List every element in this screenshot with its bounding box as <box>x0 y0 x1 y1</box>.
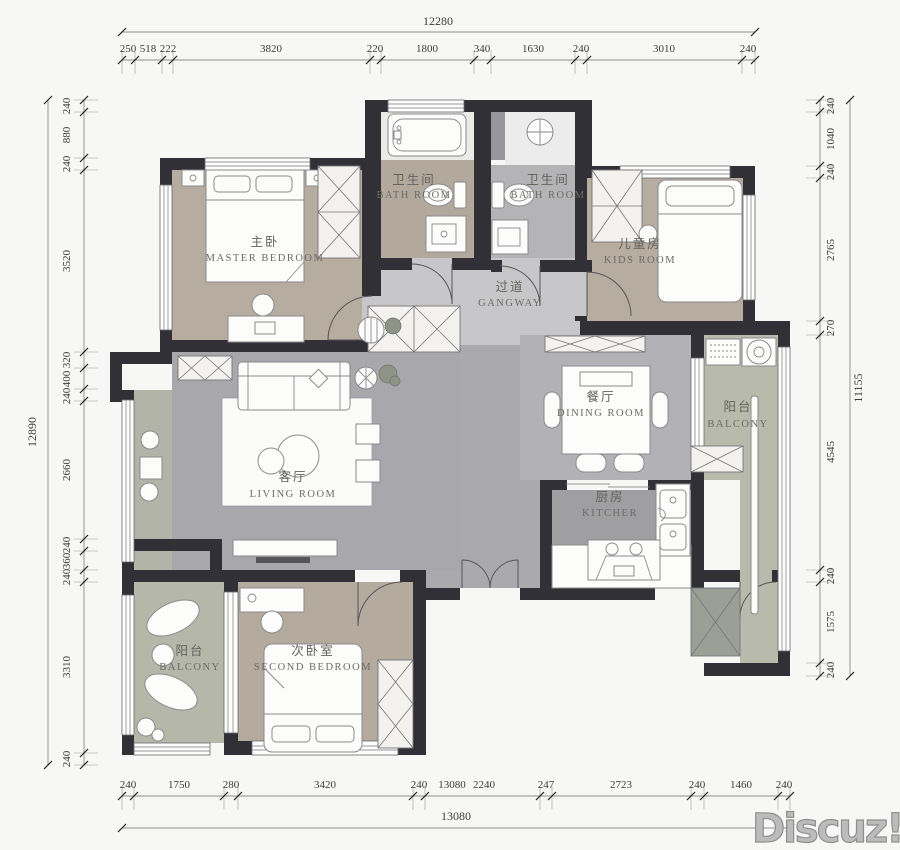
svg-text:主卧: 主卧 <box>250 234 279 249</box>
dim-label: 240 <box>120 779 137 791</box>
svg-text:GANGWAY: GANGWAY <box>478 298 542 309</box>
dim-label: 240 <box>573 43 590 55</box>
second-wardrobe-icon <box>378 660 413 748</box>
svg-text:卫生间: 卫生间 <box>392 172 436 187</box>
dim-label: 1630 <box>522 43 545 55</box>
dim-label: 880 <box>61 126 73 143</box>
dim-label: 2723 <box>610 779 633 791</box>
dim-label: 400 <box>61 370 73 387</box>
dim-label: 240 <box>825 661 837 678</box>
window-living-bay <box>122 400 134 562</box>
svg-text:LIVING ROOM: LIVING ROOM <box>250 489 337 500</box>
svg-text:BALCONY: BALCONY <box>159 662 220 673</box>
svg-text:过道: 过道 <box>495 279 524 294</box>
second-bed-icon <box>264 644 362 752</box>
dim-label: 340 <box>474 43 491 55</box>
dim-label: 1460 <box>730 779 753 791</box>
floor-plan-image: 12280 250 518 222 3820 220 1800 340 1630… <box>0 0 900 850</box>
dim-label-overlap: 13080 <box>438 779 466 791</box>
dim-label: 247 <box>538 779 555 791</box>
floor-plan-page: 12280 250 518 222 3820 220 1800 340 1630… <box>0 0 900 850</box>
dim-label: 240 <box>776 779 793 791</box>
svg-text:卫生间: 卫生间 <box>526 172 570 187</box>
flue-shaft-icon <box>691 588 740 656</box>
dim-label: 270 <box>825 319 837 336</box>
discuz-watermark: Discuz! <box>752 806 900 850</box>
door-kitchen-sliding <box>565 484 650 487</box>
bathtub-icon <box>388 114 466 156</box>
dim-label: 1800 <box>416 43 439 55</box>
dim-label: 2660 <box>61 459 73 482</box>
dim-label: 240 <box>61 97 73 114</box>
kids-wardrobe-icon <box>592 170 642 242</box>
glass-door-dining-balcony <box>691 358 704 448</box>
svg-text:BATH ROOM: BATH ROOM <box>376 190 451 201</box>
dim-label: 250 <box>120 43 137 55</box>
dim-total-top: 12280 <box>423 14 453 28</box>
window-master-top <box>205 158 310 170</box>
dim-label: 222 <box>160 43 177 55</box>
dimension-bottom: 13080 240 1750 280 3420 240 13080 2240 2… <box>118 779 794 832</box>
dimension-left: 12890 240 880 240 3520 320 400 240 2660 … <box>25 96 98 769</box>
ac-shaft-icon <box>691 446 743 472</box>
dim-label: 518 <box>140 43 157 55</box>
dim-label: 4545 <box>825 441 837 464</box>
dim-label: 3820 <box>260 43 283 55</box>
dim-label: 2765 <box>825 239 837 262</box>
master-wardrobe-icon <box>318 166 360 258</box>
window-balcony-divider <box>224 592 238 733</box>
svg-text:BALCONY: BALCONY <box>707 419 768 430</box>
window-balcony-bottom <box>134 743 210 755</box>
dim-label: 240 <box>689 779 706 791</box>
svg-text:DINING ROOM: DINING ROOM <box>557 408 645 419</box>
svg-text:BATH ROOM: BATH ROOM <box>510 190 585 201</box>
dim-label: 3520 <box>61 250 73 273</box>
svg-text:KIDS ROOM: KIDS ROOM <box>604 255 676 266</box>
svg-text:儿童房: 儿童房 <box>618 236 662 251</box>
dim-label: 1750 <box>168 779 191 791</box>
washbasin-icon <box>527 119 553 145</box>
svg-text:客厅: 客厅 <box>278 469 307 484</box>
dim-label: 3420 <box>314 779 337 791</box>
window-balcony-right <box>778 347 790 651</box>
dim-label: 2240 <box>473 779 496 791</box>
svg-text:厨房: 厨房 <box>595 489 624 504</box>
window-kids-right <box>743 195 755 300</box>
vanity-icon-bath1 <box>426 216 466 252</box>
dim-label: 240 <box>825 97 837 114</box>
sofa-icon <box>238 362 350 410</box>
dim-label: 280 <box>223 779 240 791</box>
dim-label: 240 <box>61 568 73 585</box>
shoe-cabinet-icon <box>178 356 232 380</box>
dim-label: 240 <box>61 536 73 553</box>
window-master-left <box>160 185 172 330</box>
dim-label: 3010 <box>653 43 676 55</box>
dim-total-left: 12890 <box>25 417 39 447</box>
stove-icon <box>588 540 660 580</box>
dim-label: 240 <box>825 163 837 180</box>
dim-label: 320 <box>61 351 73 368</box>
dim-label: 220 <box>367 43 384 55</box>
dim-label: 240 <box>61 155 73 172</box>
dim-label: 3310 <box>61 656 73 679</box>
svg-text:MASTER BEDROOM: MASTER BEDROOM <box>206 253 325 264</box>
svg-text:餐厅: 餐厅 <box>586 389 615 404</box>
dim-label: 240 <box>740 43 757 55</box>
svg-text:阳台: 阳台 <box>175 643 204 658</box>
dim-total-right: 11155 <box>851 373 865 402</box>
dim-total-bottom: 13080 <box>441 809 471 823</box>
dim-label: 240 <box>61 387 73 404</box>
dining-cabinet-icon <box>545 336 645 352</box>
svg-text:次卧室: 次卧室 <box>291 643 335 658</box>
dimension-right: 11155 240 1040 240 2765 270 4545 240 157… <box>806 96 865 680</box>
dimension-top: 12280 250 518 222 3820 220 1800 340 1630… <box>118 14 759 74</box>
svg-text:KITCHER: KITCHER <box>582 508 638 519</box>
dim-label: 240 <box>825 567 837 584</box>
svg-text:SECOND BEDROOM: SECOND BEDROOM <box>254 662 372 673</box>
dim-label: 1040 <box>825 128 837 151</box>
vanity-icon-bath2 <box>492 220 528 254</box>
window-balcony-left <box>122 595 134 735</box>
svg-text:阳台: 阳台 <box>723 399 752 414</box>
dim-label: 240 <box>411 779 428 791</box>
dim-label: 360 <box>61 552 73 569</box>
dim-label: 240 <box>61 750 73 767</box>
dim-label: 1575 <box>825 611 837 634</box>
window-bathtub-top <box>388 100 464 112</box>
